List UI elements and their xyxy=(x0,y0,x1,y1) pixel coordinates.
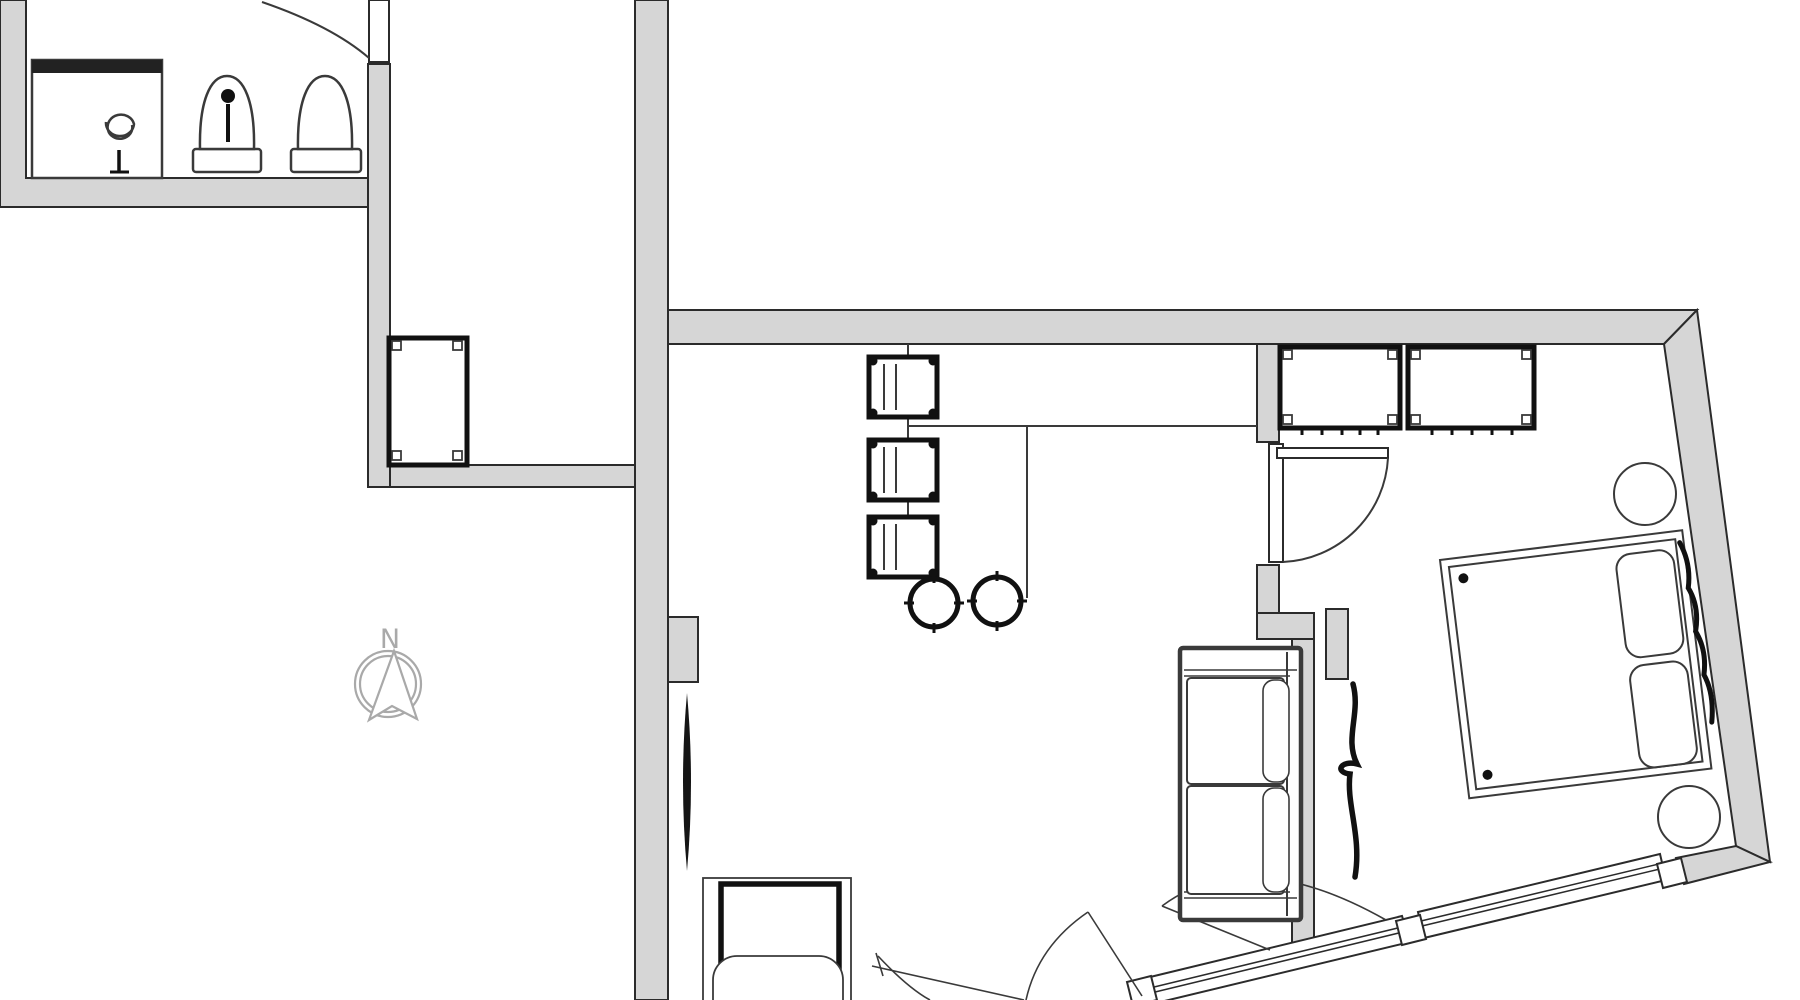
balcony-door-leaf xyxy=(872,966,1024,1000)
bathroom xyxy=(32,60,361,178)
floor-plan-canvas: N xyxy=(0,0,1800,1000)
bedroom-door-leaf xyxy=(1277,448,1388,458)
divider-wall-top xyxy=(1257,344,1279,442)
window-mullion-icon xyxy=(1396,915,1426,945)
window-band-right xyxy=(1418,854,1666,938)
round-side-table-icon xyxy=(1658,786,1720,848)
wall-tab xyxy=(668,617,698,682)
balcony-door-arc-icon xyxy=(1026,912,1088,1000)
bar-chair-icon xyxy=(869,517,938,578)
bedroom-door-swing-arc-icon xyxy=(1283,458,1388,562)
corridor-bottom-wall xyxy=(390,465,635,487)
round-side-table-icon xyxy=(1614,463,1676,525)
balcony-door-leaf xyxy=(1088,912,1142,996)
armchair-icon xyxy=(703,878,851,1000)
bathroom-door-swing-arc-icon xyxy=(262,2,369,58)
bar-chair-icon xyxy=(869,357,938,418)
window-glazing-line xyxy=(1422,868,1664,926)
sofa-icon xyxy=(1180,648,1301,920)
window-glazing-line xyxy=(1421,863,1663,921)
compass-north-icon: N xyxy=(355,624,421,720)
floor-plan-drawing: N xyxy=(0,0,1800,1000)
window-glazing-line xyxy=(1151,931,1407,993)
planter-box-icon xyxy=(32,60,162,178)
radiator-icon xyxy=(683,693,691,871)
divider-wall-mid xyxy=(1257,565,1279,617)
window-band-left xyxy=(1146,916,1410,1000)
living-room xyxy=(683,648,1357,1000)
top-wall xyxy=(668,310,1697,344)
bar-chair-icon xyxy=(869,440,938,501)
bathroom-door-frame xyxy=(369,0,389,62)
bedroom-door-frame xyxy=(1269,444,1283,562)
shaft-box-icon xyxy=(389,338,467,465)
wardrobe-icon xyxy=(1280,347,1400,435)
wardrobe-icon xyxy=(1408,347,1534,435)
divider-wall-jog xyxy=(1257,613,1314,639)
main-left-wall xyxy=(635,0,668,1000)
pillow-icon xyxy=(1615,549,1685,659)
wall-stub xyxy=(1326,609,1348,679)
bar-stool-icon xyxy=(904,573,964,633)
bar-stool-icon xyxy=(967,571,1027,631)
bed-icon xyxy=(1440,529,1720,798)
pillow-icon xyxy=(1628,660,1698,769)
kitchen-bar xyxy=(869,344,1258,633)
window-glazing-line xyxy=(1150,926,1406,988)
compass-north-label: N xyxy=(380,624,400,655)
curtain-squiggle-icon xyxy=(1341,684,1357,877)
bidet-icon xyxy=(291,76,361,172)
window-mullion-icon xyxy=(1657,858,1687,888)
toilet-icon xyxy=(193,76,261,172)
